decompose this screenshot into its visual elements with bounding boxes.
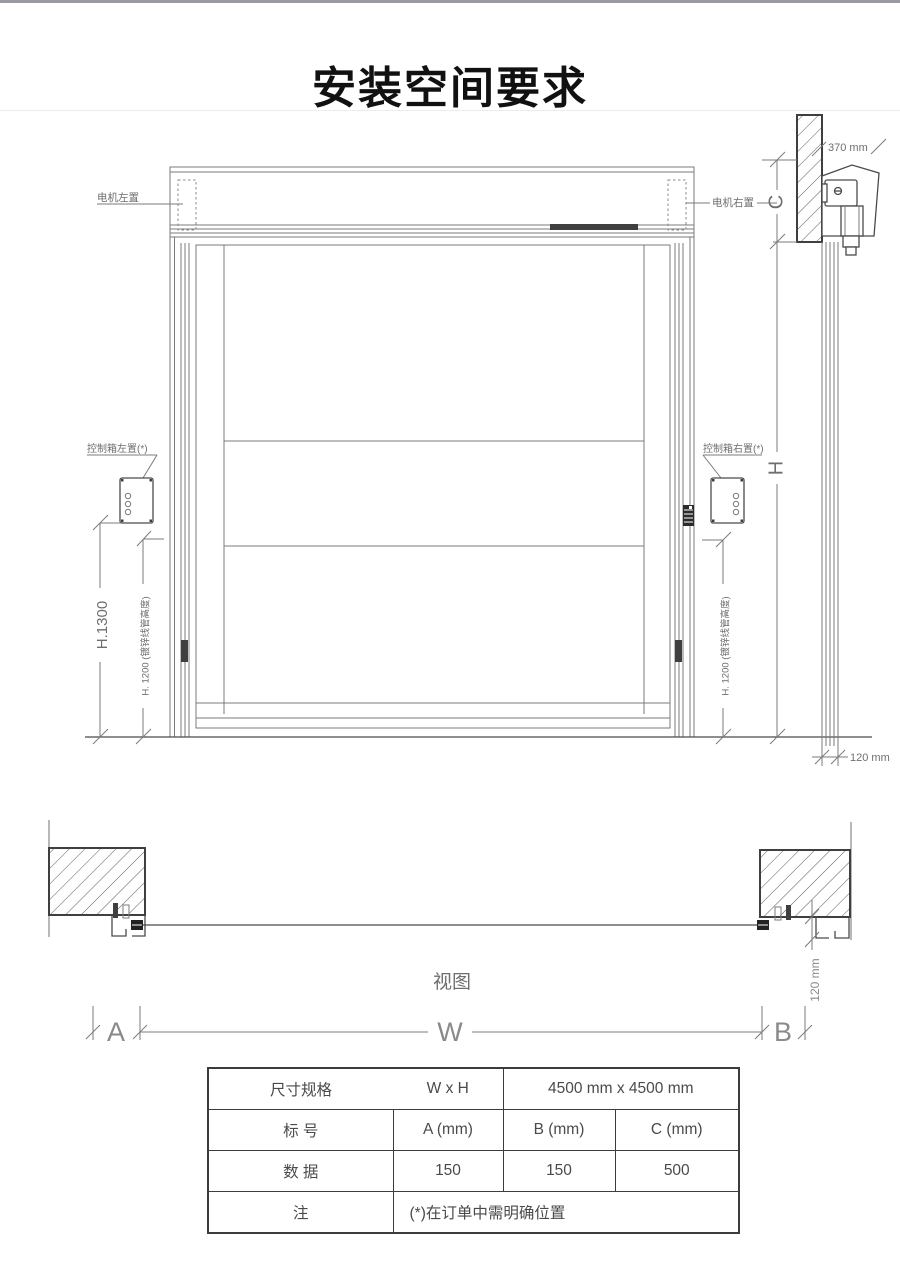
dim-h1300: H.1300: [93, 515, 121, 744]
dim-h1300-label: H.1300: [94, 601, 111, 649]
photocell-right: [675, 640, 682, 662]
keypad: [683, 505, 694, 526]
page: 安装空间要求: [0, 0, 900, 1270]
control-box-left: 控制箱左置(*): [87, 442, 157, 523]
motor-right-label: 电机右置: [712, 196, 754, 209]
dim-c-label: C: [765, 195, 787, 209]
hood-slot: [550, 224, 638, 230]
cell-c-value: 500: [615, 1151, 739, 1192]
motor-position-right-box: [668, 180, 686, 230]
dim-h1200-right-label: H. 1200 (镀锌线管高度): [720, 596, 732, 695]
guide-rail-side: [822, 242, 838, 746]
table-row: 尺寸规格 W x H 4500 mm x 4500 mm: [208, 1068, 739, 1110]
dim-a-label: A: [107, 1017, 125, 1047]
dim-120mm-elev-label: 120 mm: [850, 752, 890, 764]
dim-120mm-plan-label: 120 mm: [808, 958, 822, 1001]
dim-120mm-elevation: 120 mm: [812, 746, 890, 766]
dim-370mm: 370 mm: [812, 139, 886, 156]
cell-size-spec: 尺寸规格: [208, 1068, 393, 1110]
cell-b-value: 150: [503, 1151, 615, 1192]
cell-wxh: W x H: [393, 1068, 503, 1110]
table-row: 标 号 A (mm) B (mm) C (mm): [208, 1110, 739, 1151]
cell-size-value: 4500 mm x 4500 mm: [503, 1068, 739, 1110]
spec-table: 尺寸规格 W x H 4500 mm x 4500 mm 标 号 A (mm) …: [207, 1067, 740, 1234]
cell-c-mm: C (mm): [615, 1110, 739, 1151]
motor-left-label: 电机左置: [97, 191, 139, 204]
door-hood: [170, 167, 694, 237]
dim-h1200-right: H. 1200 (镀锌线管高度): [702, 532, 732, 744]
door-leaf: [196, 245, 670, 728]
control-right-label: 控制箱右置(*): [703, 442, 764, 455]
wall-section-elevation: [797, 115, 822, 242]
plan-wall-left: [49, 820, 145, 937]
motor-position-left-box: [178, 180, 196, 230]
dim-h1200-left-label: H. 1200 (镀锌线管高度): [140, 596, 152, 695]
cell-b-mm: B (mm): [503, 1110, 615, 1151]
dim-c-h: C H: [762, 152, 797, 744]
cell-note: 注: [208, 1192, 393, 1234]
dim-h-label: H: [765, 461, 787, 475]
door-frames: [170, 237, 694, 737]
plan-view-label: 视图: [433, 971, 471, 993]
dim-370mm-label: 370 mm: [828, 142, 868, 154]
photocell-left: [181, 640, 188, 662]
motor-right-callout: 电机右置: [686, 196, 777, 209]
table-row: 数 据 150 150 500: [208, 1151, 739, 1192]
cell-data: 数 据: [208, 1151, 393, 1192]
cell-mark: 标 号: [208, 1110, 393, 1151]
dim-h1200-left: H. 1200 (镀锌线管高度): [136, 531, 164, 744]
cell-a-mm: A (mm): [393, 1110, 503, 1151]
dim-awb: A W B: [86, 1006, 812, 1047]
control-box-right: 控制箱右置(*): [703, 442, 764, 523]
control-left-label: 控制箱左置(*): [87, 442, 148, 455]
dim-b-label: B: [774, 1017, 792, 1047]
table-row: 注 (*)在订单中需明确位置: [208, 1192, 739, 1234]
cell-note-text: (*)在订单中需明确位置: [393, 1192, 739, 1234]
motor-side-view: [822, 165, 879, 255]
cell-a-value: 150: [393, 1151, 503, 1192]
plan-wall-right: [757, 822, 851, 940]
dim-w-label: W: [437, 1017, 463, 1047]
